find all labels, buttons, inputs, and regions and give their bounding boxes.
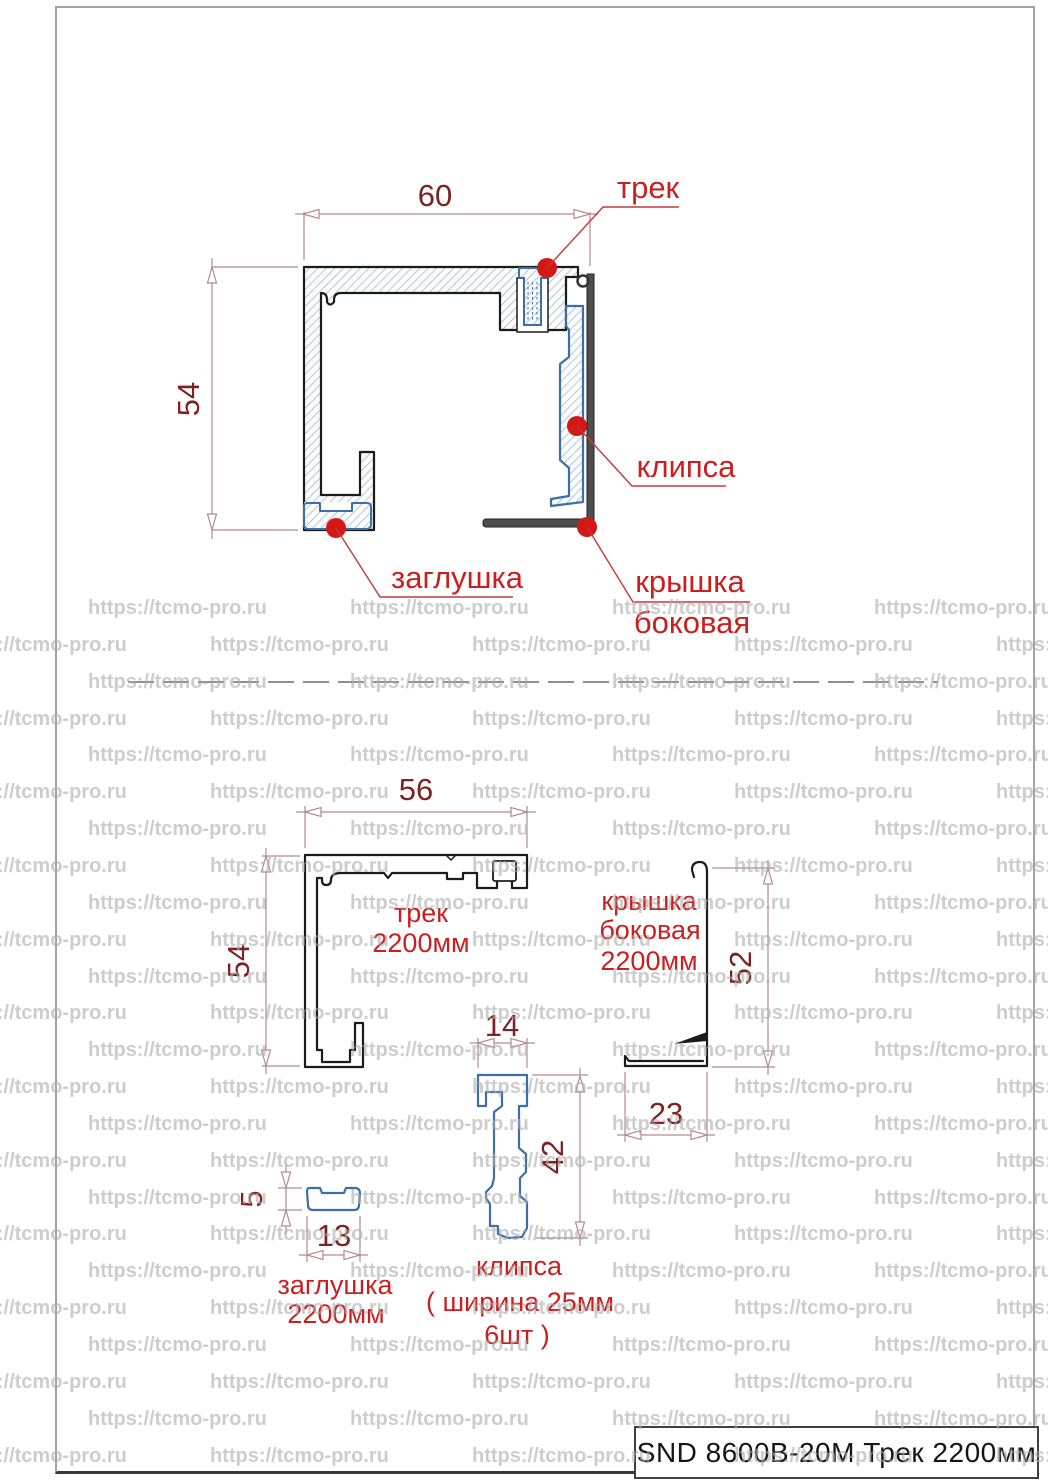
plug-part-view: 5 13 заглушка 2200мм <box>234 1164 393 1329</box>
clip-part-label-1: клипса <box>476 1251 563 1281</box>
track-part-dim-height-text: 54 <box>221 944 256 978</box>
assembly-clip <box>551 306 583 506</box>
assembly-dim-width-text: 60 <box>418 178 452 213</box>
assembly-view: 60 54 <box>171 170 750 640</box>
assembly-label-cover-2: боковая <box>634 605 750 640</box>
assembly-dim-height-text: 54 <box>171 382 206 416</box>
cover-part-dim-height-text: 52 <box>723 951 758 985</box>
assembly-side-cover-wall <box>587 274 594 527</box>
plug-part-label-1: заглушка <box>278 1270 394 1300</box>
assembly-label-plug: заглушка <box>391 560 524 595</box>
track-part-label-1: трек <box>394 898 448 928</box>
cover-part-view: 52 23 крышка боковая 2200мм <box>599 860 775 1142</box>
title-block: SND 8600B-20M Трек 2200мм <box>634 1426 1039 1479</box>
assembly-label-clip: клипса <box>637 449 737 484</box>
track-part-dim-height <box>262 848 300 1074</box>
clip-part-dim-width-text: 14 <box>485 1008 519 1043</box>
plug-part-dim-height-text: 5 <box>234 1190 269 1207</box>
track-part-dim-width <box>296 806 536 848</box>
drawing-page: 60 54 <box>0 0 1048 1484</box>
title-block-text: SND 8600B-20M Трек 2200мм <box>637 1437 1036 1469</box>
plug-part-label-2: 2200мм <box>287 1299 384 1329</box>
clip-part-profile <box>478 1075 527 1238</box>
assembly-dim-width <box>295 212 598 266</box>
clip-part-dim-height-text: 42 <box>535 1140 570 1174</box>
cover-part-dim-width-text: 23 <box>649 1096 683 1131</box>
cover-part-label-1: крышка <box>601 886 697 916</box>
assembly-dim-height <box>212 258 298 539</box>
assembly-label-track: трек <box>617 170 680 205</box>
track-part-channel-slot <box>493 861 516 881</box>
track-part-dim-width-text: 56 <box>399 772 433 807</box>
technical-drawing: 60 54 <box>0 0 1048 1484</box>
clip-part-view: 14 42 клипса ( ширина 25мм 6шт ) <box>426 1008 614 1350</box>
cover-part-label-3: 2200мм <box>600 946 697 976</box>
plug-part-dim-width-text: 13 <box>317 1218 351 1253</box>
cover-part-barb <box>674 1032 707 1044</box>
clip-part-label-2: ( ширина 25мм <box>426 1287 614 1317</box>
assembly-label-cover-1: крышка <box>635 564 745 599</box>
clip-part-label-3: 6шт ) <box>484 1320 550 1350</box>
cover-part-label-2: боковая <box>599 915 700 945</box>
plug-part-profile <box>307 1188 360 1210</box>
track-part-label-2: 2200мм <box>372 928 469 958</box>
